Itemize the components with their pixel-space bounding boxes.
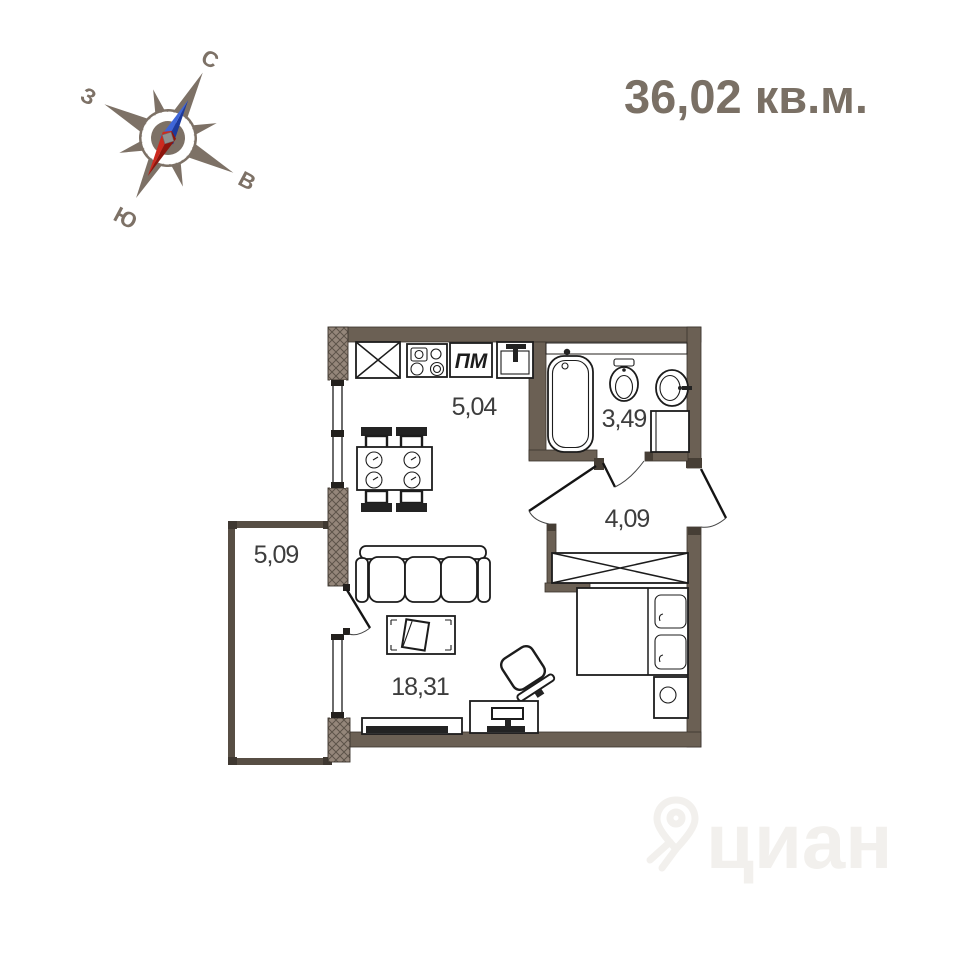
wall-right-lower <box>687 527 701 747</box>
entrance-door <box>701 469 726 527</box>
kitchen-window <box>330 380 346 488</box>
compass-west-label: З <box>76 82 100 111</box>
bed <box>577 588 688 675</box>
watermark-text: циан <box>706 797 892 885</box>
dining-chair <box>396 491 427 512</box>
floor-plan-page: С В Ю З 36,02 кв.м. <box>0 0 960 960</box>
cian-watermark: циан <box>650 797 892 885</box>
floor-plan-canvas: С В Ю З 36,02 кв.м. <box>0 0 960 960</box>
dining-chair <box>361 491 392 512</box>
room-label-balcony: 5,09 <box>254 541 299 569</box>
compass-east-label: В <box>234 166 260 196</box>
room-label-bathroom: 3,49 <box>602 405 647 433</box>
dining-chair <box>396 427 427 448</box>
stove <box>407 344 447 377</box>
room-label-kitchen: 5,04 <box>452 393 498 421</box>
wall-pier-bottom <box>328 718 350 762</box>
wall-top <box>330 327 701 342</box>
dishwasher: ПМ <box>450 343 492 377</box>
sofa <box>356 546 490 602</box>
sideboard <box>362 718 462 734</box>
desk <box>470 701 538 733</box>
compass-rose: С В Ю З <box>34 2 302 274</box>
compass-south-label: Ю <box>110 202 142 235</box>
dining-chair <box>361 427 392 448</box>
room-label-living-room: 18,31 <box>391 673 449 701</box>
pin-icon <box>650 800 695 868</box>
nightstand <box>654 677 688 718</box>
coffee-table <box>387 616 455 654</box>
dishwasher-label: ПМ <box>455 350 488 373</box>
living-room-window <box>330 634 346 718</box>
bathtub <box>548 349 593 452</box>
wall-pier-top <box>328 327 348 380</box>
washing-machine <box>651 411 689 452</box>
wardrobe <box>552 553 688 583</box>
magazine <box>402 619 429 650</box>
dining-table <box>357 447 432 490</box>
compass-north-label: С <box>197 44 223 74</box>
monitor <box>492 708 523 719</box>
kitchen-sink <box>497 342 533 378</box>
total-area-title: 36,02 кв.м. <box>624 70 868 123</box>
floor-plan: ПМ <box>228 327 726 765</box>
refrigerator <box>356 342 400 378</box>
wall-pier-middle <box>328 488 348 586</box>
room-label-hallway: 4,09 <box>605 505 650 533</box>
